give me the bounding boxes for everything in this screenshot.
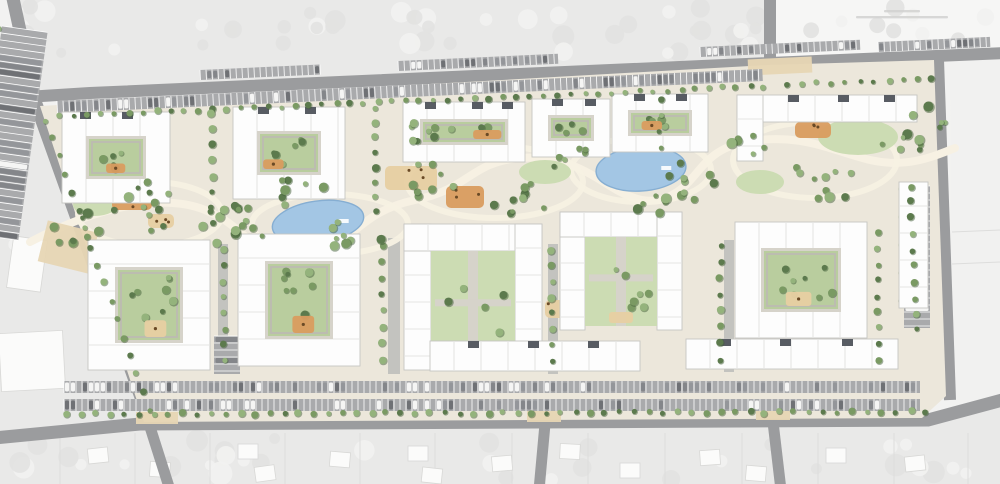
stall-line (147, 97, 148, 109)
tree-icon (129, 292, 135, 298)
car (184, 97, 188, 106)
car (449, 383, 453, 392)
tree-icon (821, 173, 829, 181)
car (785, 44, 789, 51)
car (833, 383, 837, 392)
stall-line (111, 99, 112, 111)
car (213, 71, 217, 78)
stall-line (716, 71, 717, 83)
tree-icon (908, 184, 915, 191)
context-tree-blob (947, 462, 960, 475)
courtyard-walk (589, 274, 653, 281)
stall-line (279, 91, 280, 103)
tree-icon (658, 96, 664, 102)
tree-icon (822, 265, 828, 271)
tree-icon (415, 98, 421, 104)
tree-icon (901, 135, 906, 140)
roof-core (676, 94, 687, 101)
tree-icon (98, 111, 103, 116)
play-equipment (302, 323, 305, 326)
tree-icon (584, 91, 588, 95)
context-house (329, 451, 350, 468)
car (293, 383, 297, 392)
parking-strip (64, 381, 920, 393)
context-house (560, 443, 581, 459)
tree-icon (379, 324, 386, 331)
car (275, 383, 279, 392)
stall-line (710, 71, 711, 83)
car (209, 401, 213, 410)
tree-icon (907, 213, 914, 220)
tree-icon (897, 146, 904, 153)
tree-icon (513, 94, 519, 100)
car (491, 383, 495, 392)
car (785, 383, 789, 392)
tree-icon (510, 209, 515, 214)
car (233, 383, 237, 392)
tree-icon (223, 106, 230, 113)
car (641, 383, 645, 392)
tree-icon (249, 224, 257, 232)
car (743, 383, 747, 392)
tree-icon (495, 328, 503, 336)
tree-icon (409, 137, 417, 145)
car (407, 383, 411, 392)
car (705, 73, 709, 82)
tree-icon (220, 341, 227, 348)
car (89, 401, 93, 410)
car (497, 401, 501, 410)
play-equipment (407, 169, 410, 172)
stall-line (165, 96, 166, 108)
context-tree-blob (58, 447, 78, 467)
tree-icon (341, 233, 346, 238)
car (651, 75, 655, 84)
tree-icon (706, 85, 712, 91)
tree-icon (370, 410, 377, 417)
tree-icon (208, 156, 216, 164)
tree-icon (880, 142, 885, 147)
tree-icon (146, 212, 152, 218)
stall-line (369, 87, 370, 99)
tree-icon (859, 79, 863, 83)
car (293, 401, 297, 410)
tree-icon (710, 179, 718, 187)
car (707, 48, 711, 55)
parking-strip (214, 336, 240, 374)
tree-icon (922, 409, 928, 415)
tree-icon (751, 151, 756, 156)
car (514, 82, 518, 91)
car (322, 90, 326, 99)
site-plan-canvas (0, 0, 1000, 484)
tree-icon (802, 276, 807, 281)
stall-line (189, 95, 190, 107)
car (185, 401, 189, 410)
stall-line (201, 94, 202, 106)
car (905, 383, 909, 392)
stall-line (267, 91, 268, 103)
tree-icon (716, 339, 723, 346)
car (441, 60, 445, 67)
tree-icon (121, 412, 126, 417)
stall-line (399, 85, 400, 97)
road (539, 424, 545, 484)
tree-icon (715, 274, 722, 281)
tree-icon (928, 75, 935, 82)
car (148, 98, 152, 107)
car (149, 383, 153, 392)
tree-icon (609, 91, 613, 95)
car (417, 61, 421, 68)
car (611, 401, 615, 410)
tree-icon (111, 207, 117, 213)
tree-icon (209, 411, 214, 416)
tree-icon (796, 169, 803, 176)
car (665, 383, 669, 392)
play-equipment (486, 133, 489, 136)
tree-icon (901, 77, 906, 82)
stall-line (638, 75, 639, 87)
play-equipment (477, 193, 480, 196)
car (425, 383, 429, 392)
car (927, 41, 931, 48)
car (65, 383, 69, 392)
tree-icon (717, 293, 722, 298)
tree-icon (353, 410, 359, 416)
car (851, 41, 855, 48)
context-tree-blob (900, 439, 912, 451)
car (791, 401, 795, 410)
tree-icon (458, 412, 463, 417)
stall-line (339, 88, 340, 100)
tree-icon (141, 204, 147, 210)
car (515, 383, 519, 392)
tree-icon (660, 411, 665, 416)
building-block (88, 240, 210, 370)
car (951, 40, 955, 47)
car (490, 83, 494, 92)
tree-icon (147, 408, 152, 413)
stall-line (752, 69, 753, 81)
tree-icon (141, 111, 146, 116)
tree-icon (372, 180, 378, 186)
building-block (238, 234, 360, 366)
building-block (532, 99, 610, 157)
car (370, 88, 374, 97)
roof-core (528, 341, 539, 348)
car (251, 401, 255, 410)
context-tree-blob (354, 440, 375, 461)
tree-icon (294, 409, 301, 416)
tree-icon (111, 111, 116, 116)
context-tree-blob (443, 37, 456, 50)
car (875, 401, 879, 410)
tree-icon (298, 138, 305, 145)
car (479, 401, 483, 410)
car (437, 401, 441, 410)
car (65, 401, 69, 410)
context-house (904, 455, 925, 472)
tree-icon (292, 143, 298, 149)
tree-icon (443, 410, 448, 415)
tree-icon (568, 92, 572, 96)
tree-icon (550, 279, 555, 284)
car (749, 46, 753, 53)
car (533, 401, 537, 410)
stall-line (417, 85, 418, 97)
context-tree-blob (886, 23, 901, 38)
context-house (620, 463, 640, 478)
building-block (62, 112, 170, 203)
tree-icon (653, 193, 658, 198)
tree-icon (549, 342, 554, 347)
car (89, 383, 93, 392)
stall-line (183, 95, 184, 107)
car (496, 82, 500, 91)
play-equipment (813, 124, 816, 127)
car (459, 60, 463, 67)
stall-line (590, 77, 591, 89)
car (106, 100, 110, 109)
stall-line (405, 85, 406, 97)
tree-icon (574, 409, 579, 414)
roof-core (585, 99, 596, 106)
car (713, 48, 717, 55)
context-house (408, 446, 428, 461)
car (413, 401, 417, 410)
car (76, 101, 80, 110)
stall-line (207, 94, 208, 106)
tree-icon (815, 195, 822, 202)
play-equipment (650, 124, 653, 127)
stall-line (411, 85, 412, 97)
tree-icon (222, 327, 228, 333)
tree-icon (582, 147, 588, 153)
car (83, 383, 87, 392)
car (963, 39, 967, 46)
context-tree-blob (186, 430, 208, 452)
car (335, 383, 339, 392)
car (839, 42, 843, 49)
tree-icon (548, 262, 555, 269)
tree-icon (335, 100, 341, 106)
car (833, 401, 837, 410)
tree-icon (563, 130, 569, 136)
car (502, 82, 506, 91)
tree-icon (425, 409, 432, 416)
tree-icon (595, 91, 600, 96)
tree-icon (874, 308, 881, 315)
context-tree-blob (883, 439, 897, 453)
car (563, 383, 567, 392)
stall-line (656, 74, 657, 86)
roof-core (468, 341, 479, 348)
context-tree-blob (869, 17, 885, 33)
stall-line (608, 76, 609, 88)
tree-icon (718, 409, 725, 416)
tree-icon (166, 275, 172, 281)
tree-icon (251, 411, 258, 418)
stall-line (560, 78, 561, 90)
roof-core (552, 99, 563, 106)
car (957, 40, 961, 47)
car (394, 87, 398, 96)
context-house (87, 447, 108, 464)
context-tree-blob (750, 22, 762, 34)
car (335, 401, 339, 410)
tree-icon (871, 80, 875, 84)
tree-icon (910, 249, 916, 255)
tree-icon (911, 261, 917, 267)
play-equipment (114, 167, 117, 170)
master-plan-image (0, 0, 1000, 484)
car (94, 101, 98, 110)
car (172, 97, 176, 106)
illegible-caption (884, 10, 920, 12)
car (621, 77, 625, 86)
car (747, 71, 751, 80)
car (207, 71, 211, 78)
roof-core (780, 339, 791, 346)
courtyard-playground (609, 312, 633, 323)
tree-icon (195, 413, 200, 418)
tree-icon (236, 207, 242, 213)
stall-line (698, 72, 699, 84)
context-tree-blob (960, 468, 971, 479)
play-equipment (155, 220, 158, 223)
tree-icon (908, 407, 915, 414)
tree-icon (640, 303, 648, 311)
tree-icon (875, 229, 882, 236)
tree-icon (429, 161, 436, 168)
tree-icon (340, 410, 345, 415)
tree-icon (923, 102, 933, 112)
tree-icon (675, 408, 681, 414)
tree-icon (285, 272, 290, 277)
tree-icon (554, 93, 560, 99)
context-tree-blob (269, 433, 280, 444)
tree-icon (107, 412, 114, 419)
stall-line (393, 86, 394, 98)
tree-icon (56, 239, 63, 246)
tree-icon (659, 113, 664, 118)
car (315, 66, 319, 73)
context-house (238, 444, 258, 459)
tree-icon (760, 85, 766, 91)
car (497, 383, 501, 392)
tree-icon (155, 206, 163, 214)
lawn (736, 170, 784, 194)
tree-icon (661, 193, 671, 203)
stall-line (507, 81, 508, 93)
tree-icon (195, 108, 201, 114)
stall-line (746, 70, 747, 82)
car (286, 92, 290, 101)
car (639, 76, 643, 85)
car (449, 401, 453, 410)
stall-line (650, 74, 651, 86)
stall-line (291, 90, 292, 102)
stall-line (423, 84, 424, 96)
tree-icon (665, 172, 673, 180)
context-tree-blob (408, 10, 423, 25)
tree-icon (284, 288, 289, 293)
stall-line (531, 79, 532, 91)
tree-icon (431, 98, 435, 102)
tree-icon (251, 104, 256, 109)
car (911, 383, 915, 392)
tree-icon (877, 409, 884, 416)
tree-icon (893, 410, 898, 415)
tree-icon (706, 171, 714, 179)
context-tree-blob (311, 22, 323, 34)
car (725, 401, 729, 410)
tree-icon (732, 409, 738, 415)
car (317, 383, 321, 392)
tree-icon (876, 324, 882, 330)
stall-line (722, 71, 723, 83)
tree-icon (63, 411, 70, 418)
car (633, 76, 637, 85)
car (407, 401, 411, 410)
car (161, 383, 165, 392)
tree-icon (915, 76, 921, 82)
car (537, 56, 541, 63)
tree-icon (244, 205, 251, 212)
context-tree-blob (550, 7, 568, 25)
car (274, 92, 278, 101)
car (695, 383, 699, 392)
tree-icon (309, 283, 316, 290)
stall-line (123, 98, 124, 110)
tree-icon (212, 239, 221, 248)
stall-line (375, 87, 376, 99)
context-tree-blob (836, 16, 848, 28)
context-tree-blob (811, 463, 822, 474)
tree-icon (816, 295, 822, 301)
car (737, 47, 741, 54)
tree-icon (718, 259, 724, 265)
play-equipment (455, 196, 458, 199)
tree-icon (415, 161, 421, 167)
tree-icon (550, 359, 555, 364)
tree-icon (458, 96, 463, 101)
tree-icon (813, 79, 818, 84)
tree-icon (782, 266, 789, 273)
car (669, 75, 673, 84)
stall-line (704, 72, 705, 84)
tree-icon (547, 294, 555, 302)
tree-icon (141, 314, 149, 322)
car (527, 401, 531, 410)
tree-icon (279, 106, 283, 110)
car (845, 42, 849, 49)
tree-icon (94, 263, 100, 269)
tree-icon (49, 134, 55, 140)
car (509, 383, 513, 392)
play-equipment (154, 327, 157, 330)
car (587, 383, 591, 392)
tree-icon (281, 201, 288, 208)
tree-icon (645, 290, 652, 297)
car (657, 75, 661, 84)
tree-icon (445, 98, 451, 104)
tree-icon (914, 326, 919, 331)
car (70, 102, 74, 111)
car (538, 80, 542, 89)
stall-line (513, 80, 514, 92)
